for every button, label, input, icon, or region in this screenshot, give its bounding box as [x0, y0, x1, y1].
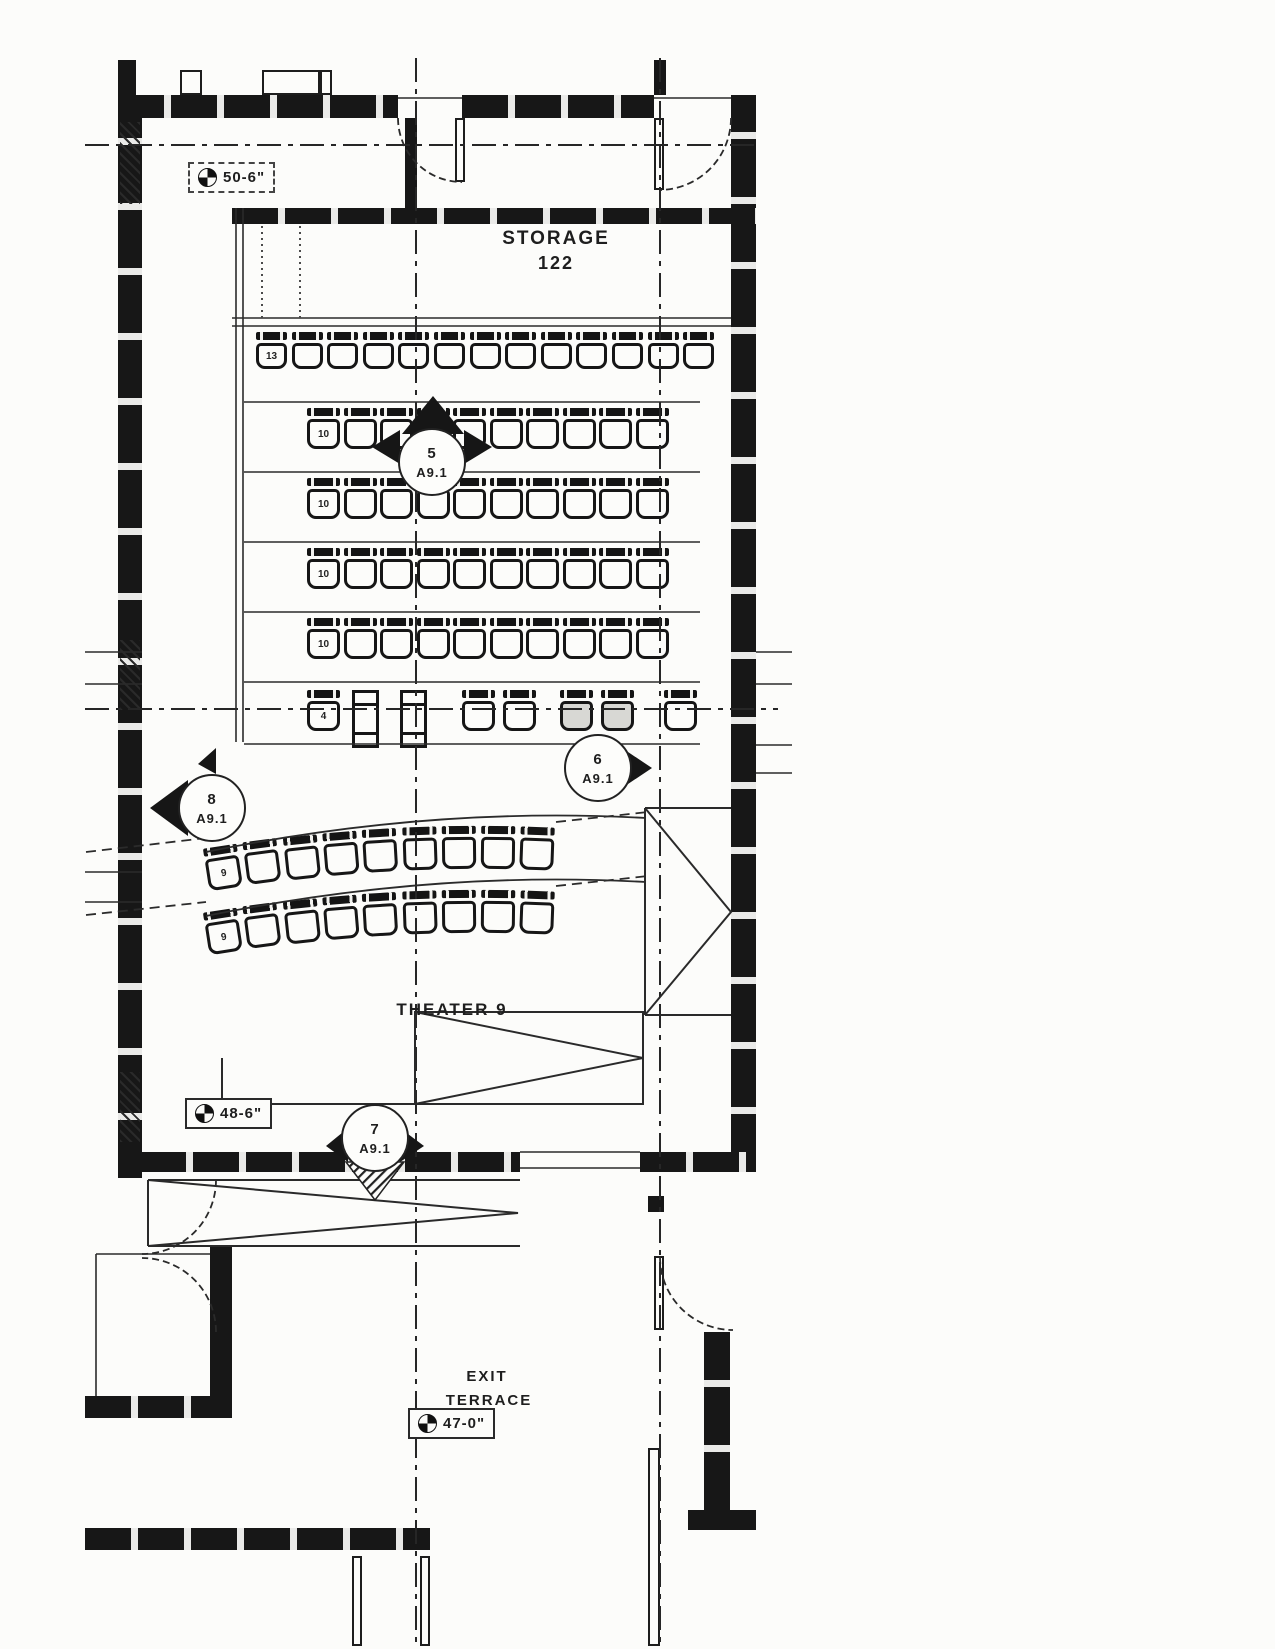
- annotation-layer: STORAGE 122 THEATER 9 EXIT TERRACE 50-6"…: [0, 0, 1275, 1649]
- callout-number: 5: [427, 445, 436, 462]
- exit-label: EXIT: [466, 1368, 507, 1385]
- callout-number: 6: [593, 751, 602, 768]
- callout-sheet: A9.1: [359, 1141, 390, 1156]
- storage-room-name: STORAGE: [502, 228, 610, 250]
- section-callout-6: 6 A9.1: [564, 734, 632, 802]
- benchmark-icon: [195, 1104, 214, 1123]
- elevation-value: 47-0": [443, 1415, 485, 1432]
- benchmark-icon: [198, 168, 217, 187]
- callout-circle: 5 A9.1: [398, 428, 466, 496]
- callout-circle: 6 A9.1: [564, 734, 632, 802]
- callout-number: 7: [370, 1121, 379, 1138]
- callout-sheet: A9.1: [196, 811, 227, 826]
- callout-number: 8: [207, 791, 216, 808]
- section-callout-8: 8 A9.1: [178, 774, 246, 842]
- benchmark-icon: [418, 1414, 437, 1433]
- section-callout-5: 5 A9.1: [398, 428, 466, 496]
- elevation-marker-upper: 50-6": [188, 162, 275, 193]
- callout-sheet: A9.1: [416, 465, 447, 480]
- storage-room-number: 122: [538, 253, 574, 274]
- terrace-label: TERRACE: [446, 1392, 533, 1409]
- elevation-marker-lower: 47-0": [408, 1408, 495, 1439]
- section-callout-7: 7 A9.1: [341, 1104, 409, 1172]
- elevation-value: 48-6": [220, 1105, 262, 1122]
- callout-circle: 8 A9.1: [178, 774, 246, 842]
- callout-circle: 7 A9.1: [341, 1104, 409, 1172]
- theater-room-name: THEATER 9: [396, 1000, 507, 1020]
- callout-sheet: A9.1: [582, 771, 613, 786]
- floor-plan: 1310101010499: [0, 0, 1275, 1649]
- elevation-value: 50-6": [223, 169, 265, 186]
- elevation-marker-mid: 48-6": [185, 1098, 272, 1129]
